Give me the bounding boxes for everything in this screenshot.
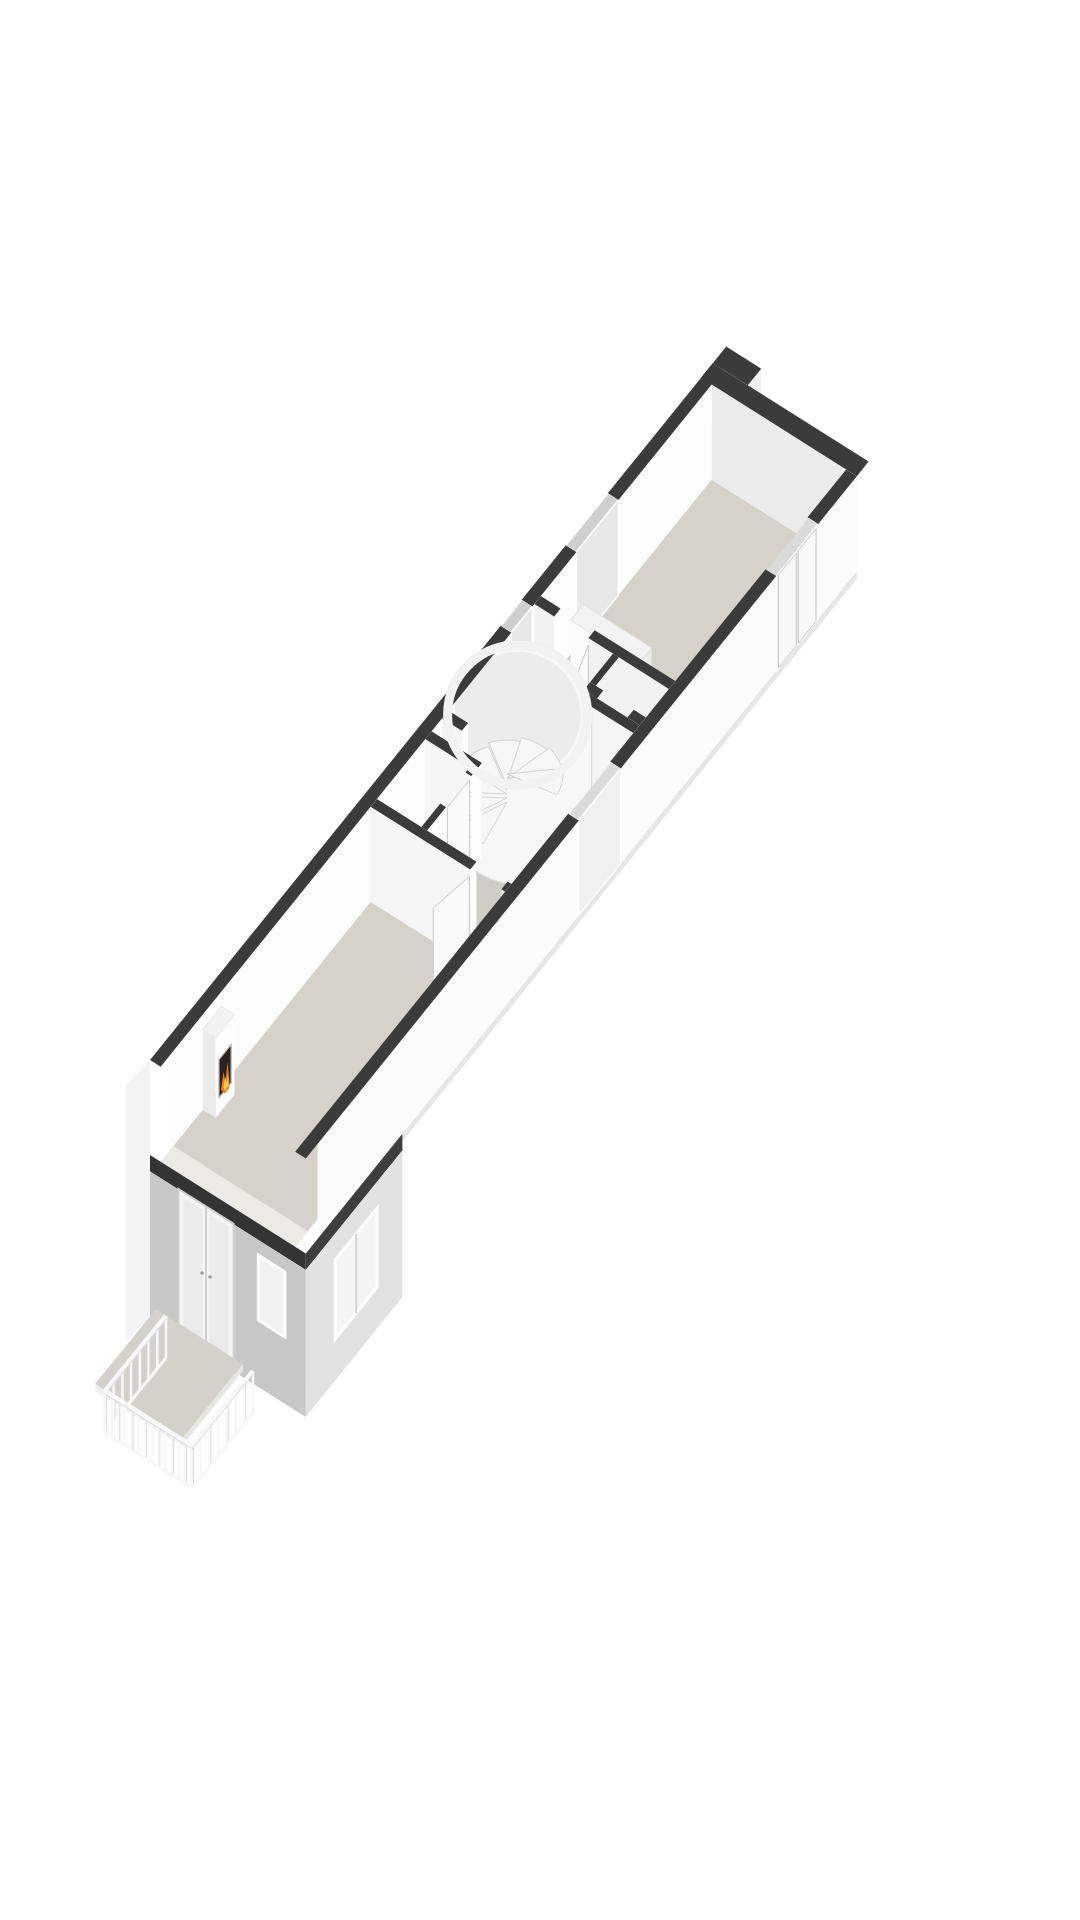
door-handle	[208, 1275, 212, 1279]
floorplan-render-page	[0, 0, 1080, 1920]
floorplan-3d-render	[0, 0, 1080, 1920]
door-handle	[200, 1271, 204, 1275]
chimney-side	[203, 1030, 216, 1118]
left-outer-wall	[126, 1060, 150, 1341]
door-glass	[184, 1198, 203, 1345]
door-glass	[210, 1214, 229, 1357]
